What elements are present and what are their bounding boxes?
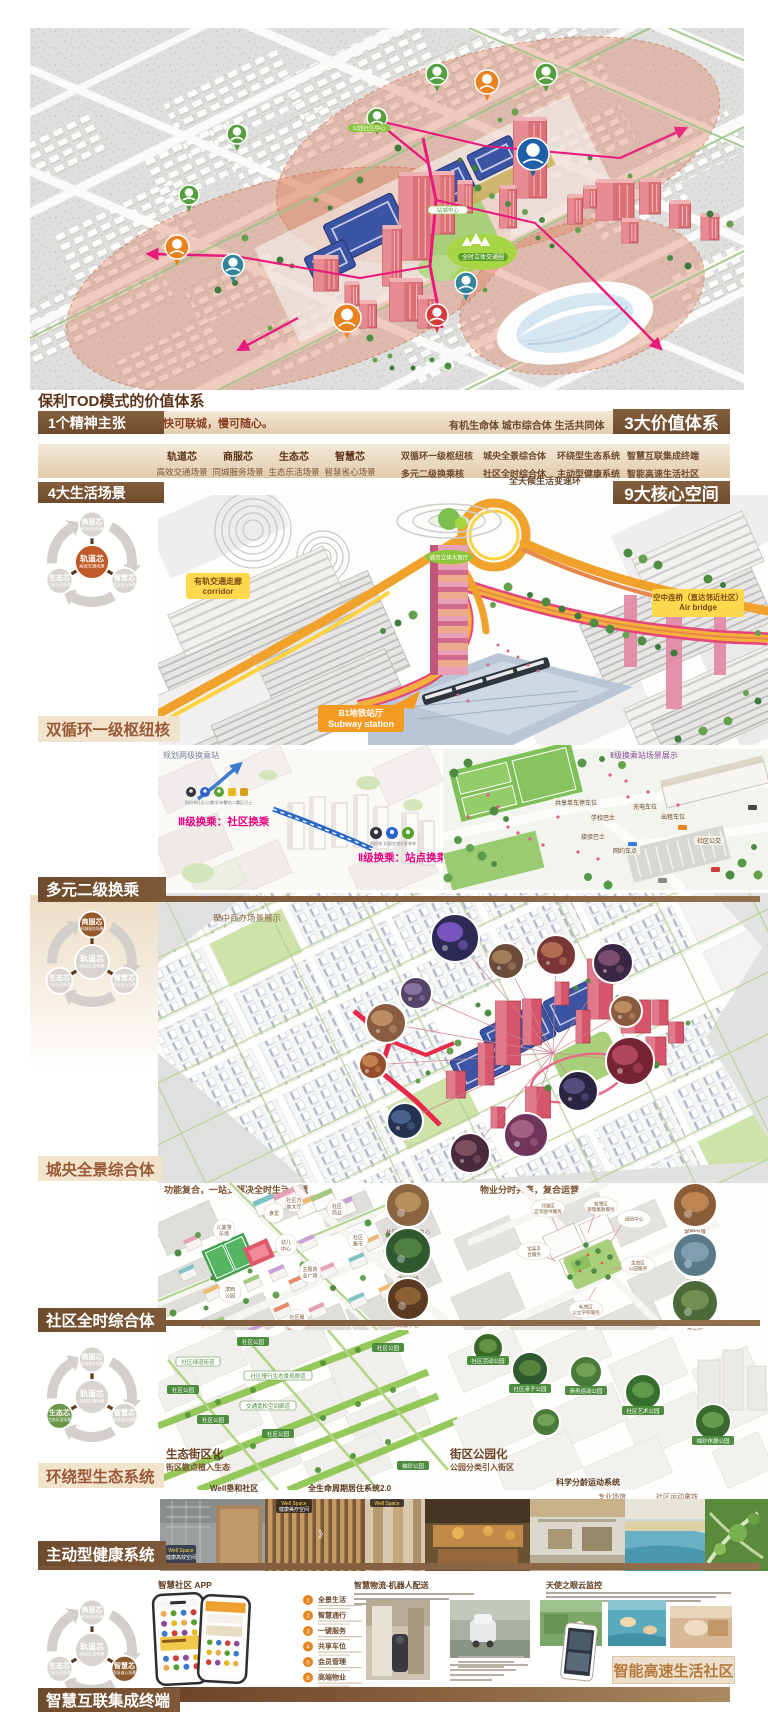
svg-text:规划两级换乘站: 规划两级换乘站 bbox=[163, 750, 219, 760]
svg-text:智慧芯: 智慧芯 bbox=[114, 1661, 135, 1670]
svg-text:B1地铁站厅: B1地铁站厅 bbox=[339, 708, 384, 718]
svg-text:公园社区中心: 公园社区中心 bbox=[352, 124, 386, 132]
svg-text:社区慢行生态景观廊道: 社区慢行生态景观廊道 bbox=[250, 1372, 306, 1380]
svg-text:高端物业: 高端物业 bbox=[318, 1673, 346, 1682]
svg-text:充电车位: 充电车位 bbox=[633, 803, 657, 811]
svg-text:一键服务: 一键服务 bbox=[318, 1626, 347, 1635]
svg-text:同城服务场景: 同城服务场景 bbox=[81, 1614, 104, 1619]
svg-text:智慧物流-机器人配送: 智慧物流-机器人配送 bbox=[354, 1580, 430, 1590]
svg-text:宜邻图书服务: 宜邻图书服务 bbox=[534, 1208, 562, 1215]
svg-text:智慧省心场景: 智慧省心场景 bbox=[113, 1670, 136, 1675]
svg-text:社区公园: 社区公园 bbox=[202, 1416, 225, 1424]
svg-text:社区艺术公园: 社区艺术公园 bbox=[626, 1407, 660, 1415]
svg-text:共享单车: 共享单车 bbox=[400, 840, 417, 847]
svg-text:天使之眼云监控: 天使之眼云监控 bbox=[546, 1580, 602, 1590]
svg-text:社区公园: 社区公园 bbox=[172, 1386, 195, 1394]
svg-text:空中连桥（直达邻近社区）: 空中连桥（直达邻近社区） bbox=[653, 592, 743, 602]
svg-text:街区公园化: 街区公园化 bbox=[449, 1447, 508, 1461]
svg-text:智慧芯: 智慧芯 bbox=[114, 973, 135, 982]
svg-text:台服务: 台服务 bbox=[527, 1251, 541, 1258]
svg-text:滨西: 滨西 bbox=[225, 1286, 235, 1293]
svg-text:Subway station: Subway station bbox=[328, 719, 394, 729]
svg-text:同城服务场景: 同城服务场景 bbox=[81, 926, 104, 931]
svg-text:乐场: 乐场 bbox=[219, 1231, 229, 1238]
svg-text:智慧通行: 智慧通行 bbox=[318, 1611, 346, 1620]
svg-text:学校巴士: 学校巴士 bbox=[591, 814, 615, 822]
svg-text:生态乐活场景: 生态乐活场景 bbox=[48, 1670, 71, 1675]
svg-text:主题商: 主题商 bbox=[302, 1266, 317, 1273]
svg-text:全生命周期居住系统2.0: 全生命周期居住系统2.0 bbox=[307, 1483, 392, 1493]
svg-text:社区公园: 社区公园 bbox=[267, 1430, 290, 1438]
svg-text:同城服务场景: 同城服务场景 bbox=[81, 1361, 104, 1366]
svg-text:社区亲子公园: 社区亲子公园 bbox=[513, 1385, 547, 1393]
svg-text:公园分类引入街区: 公园分类引入街区 bbox=[450, 1462, 514, 1472]
svg-text:轨道芯: 轨道芯 bbox=[80, 954, 104, 964]
svg-text:商服芯: 商服芯 bbox=[82, 517, 103, 526]
svg-text:生态芯: 生态芯 bbox=[49, 1661, 70, 1670]
svg-text:全时立体交通圈: 全时立体交通圈 bbox=[462, 253, 504, 261]
svg-text:接驳巴士: 接驳巴士 bbox=[581, 833, 605, 841]
svg-text:Ⅲ级换乘：社区换乘: Ⅲ级换乘：社区换乘 bbox=[178, 815, 270, 828]
svg-text:网约车: 网约车 bbox=[185, 799, 198, 806]
svg-text:袖珍公园: 袖珍公园 bbox=[402, 1462, 425, 1470]
svg-text:商服芯: 商服芯 bbox=[82, 1352, 103, 1361]
svg-text:商务运动公园: 商务运动公园 bbox=[569, 1387, 603, 1395]
svg-text:高效交通场景: 高效交通场景 bbox=[79, 1398, 104, 1405]
svg-text:网约车: 网约车 bbox=[370, 840, 383, 847]
svg-text:湾区巴士: 湾区巴士 bbox=[236, 799, 253, 806]
svg-text:轨道芯: 轨道芯 bbox=[80, 1389, 104, 1399]
svg-text:社区: 社区 bbox=[353, 1234, 363, 1241]
svg-text:生态乐活场景: 生态乐活场景 bbox=[48, 582, 71, 587]
svg-text:Air bridge: Air bridge bbox=[679, 603, 717, 612]
svg-text:站城中心: 站城中心 bbox=[437, 206, 460, 214]
svg-text:聚中商办场景展示: 聚中商办场景展示 bbox=[213, 913, 281, 923]
svg-text:智慧芯: 智慧芯 bbox=[114, 1408, 135, 1417]
svg-text:全景生活: 全景生活 bbox=[317, 1595, 346, 1604]
svg-text:有轨交通走廊: 有轨交通走廊 bbox=[194, 576, 242, 586]
svg-text:高效交通场景: 高效交通场景 bbox=[79, 963, 104, 970]
svg-text:智慧省心场景: 智慧省心场景 bbox=[113, 982, 136, 987]
svg-text:健康高效空间: 健康高效空间 bbox=[166, 1554, 196, 1561]
svg-text:社区公园: 社区公园 bbox=[377, 1344, 400, 1352]
svg-text:Well Space: Well Space bbox=[168, 1548, 193, 1554]
svg-text:Well Space: Well Space bbox=[374, 1501, 399, 1507]
svg-text:corridor: corridor bbox=[203, 587, 234, 596]
svg-text:生态芯: 生态芯 bbox=[49, 1408, 70, 1417]
svg-text:轨道芯: 轨道芯 bbox=[80, 1642, 104, 1652]
svg-text:公立学校服务: 公立学校服务 bbox=[572, 1309, 600, 1316]
svg-text:高效交通场景: 高效交通场景 bbox=[79, 563, 104, 570]
svg-text:幼儿: 幼儿 bbox=[281, 1239, 291, 1246]
svg-text:组团中心: 组团中心 bbox=[625, 1216, 644, 1223]
svg-text:智慧省心场景: 智慧省心场景 bbox=[113, 1417, 136, 1422]
svg-text:象大厅: 象大厅 bbox=[286, 1204, 301, 1211]
svg-text:公园: 公园 bbox=[225, 1294, 235, 1300]
svg-text:公园服务: 公园服务 bbox=[629, 1265, 648, 1272]
svg-text:商业: 商业 bbox=[332, 1210, 342, 1217]
svg-text:生态乐活场景: 生态乐活场景 bbox=[48, 982, 71, 987]
svg-text:儿童游: 儿童游 bbox=[216, 1224, 231, 1231]
svg-text:共享单车停车位: 共享单车停车位 bbox=[555, 799, 597, 807]
svg-text:Well垦和社区: Well垦和社区 bbox=[210, 1483, 258, 1493]
svg-text:轨道芯: 轨道芯 bbox=[80, 554, 104, 564]
svg-text:社区公交: 社区公交 bbox=[697, 837, 721, 845]
svg-text:健康美疗空间: 健康美疗空间 bbox=[279, 1506, 309, 1513]
svg-text:管理集散服务: 管理集散服务 bbox=[587, 1206, 615, 1213]
svg-text:出租车位: 出租车位 bbox=[661, 813, 685, 821]
svg-text:智慧社区 APP: 智慧社区 APP bbox=[157, 1580, 212, 1590]
svg-text:业广场: 业广场 bbox=[302, 1273, 317, 1280]
svg-text:商服芯: 商服芯 bbox=[82, 1605, 103, 1614]
svg-text:生态芯: 生态芯 bbox=[49, 973, 70, 982]
svg-text:同城服务场景: 同城服务场景 bbox=[81, 526, 104, 531]
svg-text:会员管理: 会员管理 bbox=[318, 1657, 346, 1666]
svg-text:》: 》 bbox=[318, 1529, 328, 1541]
svg-text:城市立体大客厅: 城市立体大客厅 bbox=[430, 554, 469, 562]
svg-text:生态芯: 生态芯 bbox=[49, 573, 70, 582]
svg-text:社区绿道街道: 社区绿道街道 bbox=[181, 1358, 215, 1366]
svg-text:社区万: 社区万 bbox=[286, 1197, 301, 1204]
svg-text:中心: 中心 bbox=[281, 1246, 291, 1253]
svg-text:街区散点植入生态: 街区散点植入生态 bbox=[165, 1462, 230, 1472]
svg-text:社区活动公园: 社区活动公园 bbox=[471, 1357, 505, 1365]
svg-text:网约车点: 网约车点 bbox=[613, 847, 637, 855]
svg-text:轨道交通: 轨道交通 bbox=[384, 840, 402, 847]
svg-text:交通宽松空间廊道: 交通宽松空间廊道 bbox=[246, 1402, 291, 1410]
svg-text:商服芯: 商服芯 bbox=[82, 917, 103, 926]
svg-text:集市: 集市 bbox=[353, 1241, 363, 1248]
svg-text:生态区: 生态区 bbox=[631, 1260, 645, 1266]
svg-text:生态乐活场景: 生态乐活场景 bbox=[48, 1417, 71, 1422]
svg-text:社区: 社区 bbox=[332, 1203, 342, 1210]
svg-text:共享车位: 共享车位 bbox=[318, 1642, 346, 1651]
svg-text:智慧省心场景: 智慧省心场景 bbox=[113, 582, 136, 587]
svg-text:食堂: 食堂 bbox=[269, 1210, 279, 1217]
svg-text:智慧芯: 智慧芯 bbox=[114, 573, 135, 582]
svg-text:Ⅱ级换乘：站点换乘: Ⅱ级换乘：站点换乘 bbox=[358, 851, 448, 864]
svg-text:社区公园: 社区公园 bbox=[242, 1338, 265, 1346]
svg-text:生态街区化: 生态街区化 bbox=[166, 1447, 224, 1461]
svg-text:Ⅱ级换乘站场景展示: Ⅱ级换乘站场景展示 bbox=[610, 750, 678, 760]
svg-text:袖珍休憩公园: 袖珍休憩公园 bbox=[696, 1437, 730, 1445]
svg-text:高效交通场景: 高效交通场景 bbox=[79, 1651, 104, 1658]
